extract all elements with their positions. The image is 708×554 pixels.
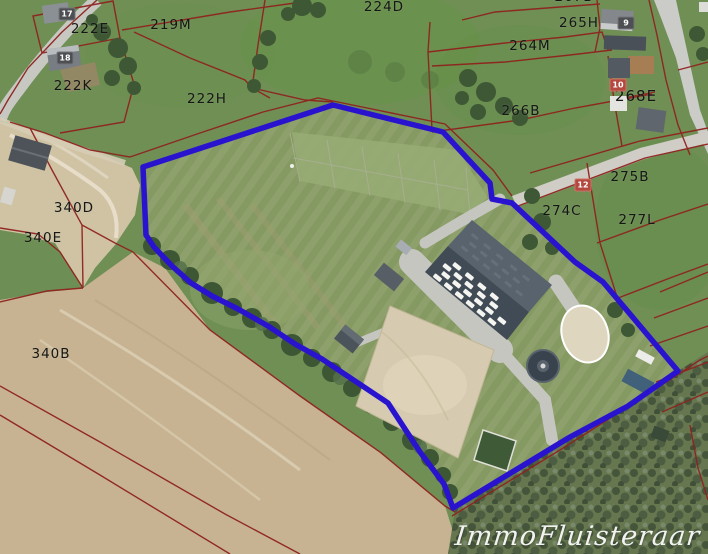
- parcel-label-275B: 275B: [610, 169, 649, 185]
- parcel-label-222H: 222H: [187, 91, 227, 107]
- parcel-label-266B: 266B: [501, 103, 540, 119]
- house-number-marker-18: 18: [57, 52, 74, 65]
- aerial-photo-layer: [0, 0, 708, 554]
- house-number-marker-9: 9: [618, 17, 635, 30]
- parcel-label-340D: 340D: [54, 200, 94, 216]
- aerial-map-canvas: 222E 219M 222K 222H 224D 267B 265H 264M …: [0, 0, 708, 554]
- parcel-label-264M: 264M: [509, 38, 550, 54]
- watermark-logo: ImmoFluisteraar: [453, 521, 701, 552]
- house-number-marker-12: 12: [575, 179, 592, 192]
- parcel-label-274C: 274C: [542, 203, 581, 219]
- parcel-label-219M: 219M: [150, 17, 191, 33]
- parcel-label-277L: 277L: [618, 212, 655, 228]
- horse-walker: [527, 350, 559, 382]
- parcel-label-340B: 340B: [31, 346, 70, 362]
- parcel-label-222K: 222K: [54, 78, 93, 94]
- parcel-label-222E: 222E: [71, 21, 109, 37]
- parcel-label-265H: 265H: [559, 15, 599, 31]
- parcel-label-267B: 267B: [554, 0, 593, 5]
- parcel-label-224D: 224D: [364, 0, 404, 15]
- house-number-marker-10: 10: [610, 79, 627, 92]
- parcel-label-340E: 340E: [24, 230, 62, 246]
- house-number-marker-17: 17: [59, 8, 76, 21]
